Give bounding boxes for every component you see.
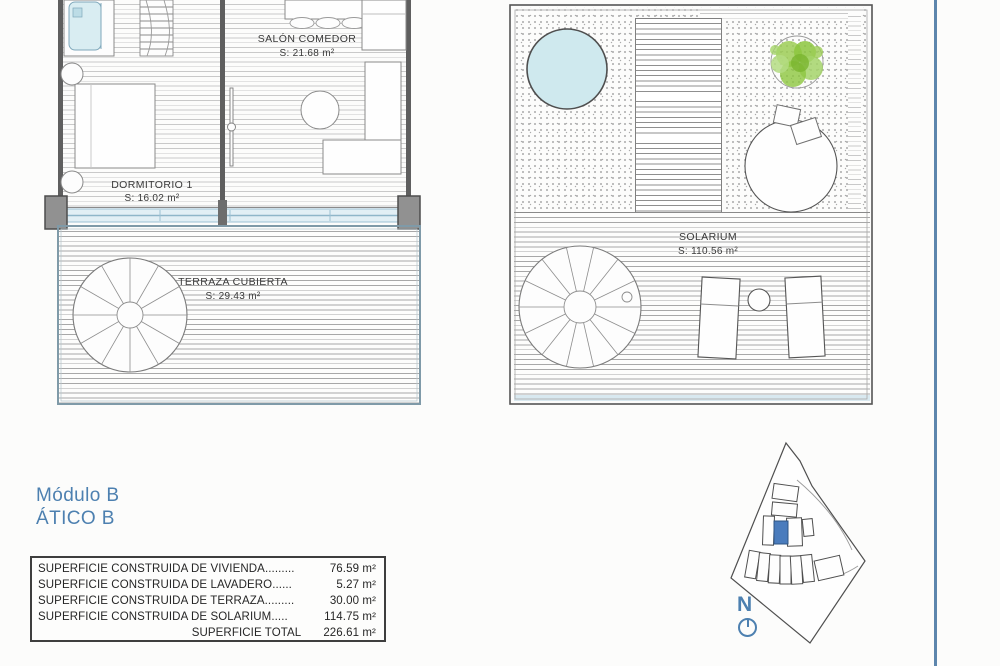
plan-sheet: SALÓN COMEDOR S: 21.68 m² DORMITORIO 1 S… <box>0 0 1000 666</box>
shower <box>64 0 114 56</box>
table-row: SUPERFICIE CONSTRUIDA DE SOLARIUM..... 1… <box>38 609 376 625</box>
nightstand <box>61 63 83 85</box>
north-compass-icon <box>738 618 757 637</box>
row-value: 76.59 m² <box>330 561 376 577</box>
window-band <box>67 209 398 222</box>
living-level-linework <box>40 0 430 412</box>
sun-lounger <box>785 276 825 358</box>
row-value: 5.27 m² <box>336 577 376 593</box>
north-compass: N <box>737 594 761 637</box>
plant <box>770 36 823 88</box>
sliding-door <box>228 88 236 166</box>
pillar <box>45 196 67 229</box>
jacuzzi <box>527 29 607 109</box>
room-area-terraza: S: 29.43 m² <box>148 291 318 302</box>
table-row-total: SUPERFICIE TOTAL 226.61 m² <box>38 625 376 641</box>
spiral-staircase <box>519 246 641 368</box>
bed <box>75 84 155 168</box>
room-area-dormitorio: S: 16.02 m² <box>67 193 237 204</box>
interior-stairs <box>140 0 173 56</box>
row-label: SUPERFICIE CONSTRUIDA DE VIVIENDA.......… <box>38 561 295 577</box>
room-label-salon: SALÓN COMEDOR <box>222 33 392 45</box>
row-value: 30.00 m² <box>330 593 376 609</box>
table-row: SUPERFICIE CONSTRUIDA DE VIVIENDA.......… <box>38 561 376 577</box>
floorplan-solarium-level: SOLARIUM S: 110.56 m² <box>505 0 880 412</box>
total-value: 226.61 m² <box>323 625 376 641</box>
row-label: SUPERFICIE CONSTRUIDA DE TERRAZA........… <box>38 593 294 609</box>
unit-name: ÁTICO B <box>36 507 119 530</box>
surface-table: SUPERFICIE CONSTRUIDA DE VIVIENDA.......… <box>30 556 386 642</box>
dining-table <box>285 0 366 29</box>
table-row: SUPERFICIE CONSTRUIDA DE TERRAZA........… <box>38 593 376 609</box>
wall-right <box>406 0 411 209</box>
table-row: SUPERFICIE CONSTRUIDA DE LAVADERO...... … <box>38 577 376 593</box>
row-value: 114.75 m² <box>324 609 376 625</box>
solarium-linework <box>505 0 880 412</box>
sheet-title: Módulo B ÁTICO B <box>36 484 119 530</box>
site-location-plan <box>700 430 900 666</box>
round-table <box>301 91 339 129</box>
room-label-solarium: SOLARIUM <box>623 231 793 243</box>
room-label-dormitorio: DORMITORIO 1 <box>67 179 237 191</box>
north-label: N <box>737 594 761 616</box>
page-divider-line <box>934 0 937 666</box>
room-area-salon: S: 21.68 m² <box>222 48 392 59</box>
row-label: SUPERFICIE CONSTRUIDA DE LAVADERO...... <box>38 577 292 593</box>
total-label: SUPERFICIE TOTAL <box>192 625 302 641</box>
room-label-terraza: TERRAZA CUBIERTA <box>148 276 318 288</box>
module-name: Módulo B <box>36 484 119 507</box>
highlighted-unit <box>774 521 788 544</box>
row-label: SUPERFICIE CONSTRUIDA DE SOLARIUM..... <box>38 609 288 625</box>
pillar <box>398 196 420 229</box>
room-area-solarium: S: 110.56 m² <box>623 246 793 257</box>
round-table <box>745 105 837 212</box>
sun-lounger <box>698 277 740 359</box>
side-table <box>748 289 770 311</box>
floorplan-living-level: SALÓN COMEDOR S: 21.68 m² DORMITORIO 1 S… <box>40 0 430 412</box>
